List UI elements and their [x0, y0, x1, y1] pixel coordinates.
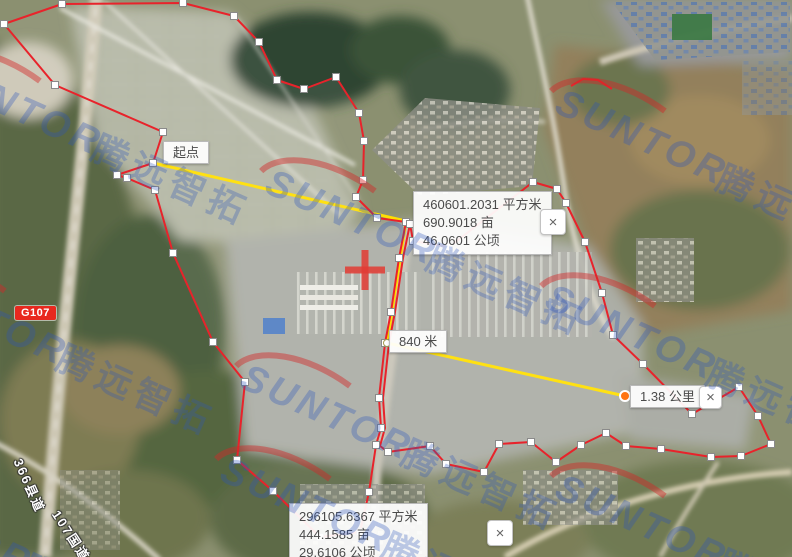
vertex-handle[interactable]	[385, 449, 392, 456]
close-distance-button[interactable]: ×	[699, 386, 722, 409]
area-tooltip-left: 460601.2031 平方米 690.9018 亩 46.0601 公顷	[413, 191, 552, 255]
area-right-mu: 444.1585 亩	[299, 526, 418, 544]
measurement-overlay	[0, 0, 792, 557]
vertex-handle[interactable]	[376, 395, 383, 402]
vertex-handle[interactable]	[582, 239, 589, 246]
vertex-handle[interactable]	[256, 39, 263, 46]
vertex-handle[interactable]	[231, 13, 238, 20]
vertex-handle[interactable]	[170, 250, 177, 257]
area-left-mu: 690.9018 亩	[423, 214, 542, 232]
vertex-handle[interactable]	[333, 74, 340, 81]
area-tooltip-right: 296105.6367 平方米 444.1585 亩 29.6106 公顷	[289, 503, 428, 557]
vertex-handle[interactable]	[640, 361, 647, 368]
vertex-handle[interactable]	[180, 0, 187, 7]
vertex-handle[interactable]	[563, 200, 570, 207]
vertex-handle[interactable]	[623, 443, 630, 450]
vertex-handle[interactable]	[360, 177, 367, 184]
vertex-handle[interactable]	[388, 309, 395, 316]
vertex-handle[interactable]	[603, 430, 610, 437]
vertex-handle[interactable]	[270, 488, 277, 495]
g107-road-badge: G107	[15, 306, 56, 320]
vertex-handle[interactable]	[496, 441, 503, 448]
vertex-handle[interactable]	[59, 1, 66, 8]
vertex-handle[interactable]	[356, 110, 363, 117]
vertex-handle[interactable]	[553, 459, 560, 466]
area-left-ha: 46.0601 公顷	[423, 232, 542, 250]
close-area-left-button[interactable]: ×	[540, 209, 566, 235]
vertex-handle[interactable]	[242, 379, 249, 386]
vertex-handle[interactable]	[599, 290, 606, 297]
vertex-handle[interactable]	[152, 187, 159, 194]
distance-segment-label: 840 米	[389, 330, 447, 353]
vertex-handle[interactable]	[114, 172, 121, 179]
vertex-handle[interactable]	[274, 77, 281, 84]
vertex-handle[interactable]	[396, 255, 403, 262]
road-accent	[571, 79, 612, 89]
vertex-handle[interactable]	[361, 138, 368, 145]
measure-endpoint[interactable]	[620, 391, 630, 401]
vertex-handle[interactable]	[768, 441, 775, 448]
vertex-handle[interactable]	[738, 453, 745, 460]
vertex-handle[interactable]	[378, 425, 385, 432]
vertex-handle[interactable]	[554, 186, 561, 193]
vertex-handle[interactable]	[353, 194, 360, 201]
map-canvas[interactable]: 起点 460601.2031 平方米 690.9018 亩 46.0601 公顷…	[0, 0, 792, 557]
area-right-sqm: 296105.6367 平方米	[299, 508, 418, 526]
vertex-handle[interactable]	[374, 215, 381, 222]
vertex-handle[interactable]	[52, 82, 59, 89]
vertex-handle[interactable]	[658, 446, 665, 453]
vertex-handle[interactable]	[481, 469, 488, 476]
vertex-handle[interactable]	[530, 179, 537, 186]
vertex-handle[interactable]	[708, 454, 715, 461]
vertex-handle[interactable]	[150, 160, 157, 167]
vertex-handle[interactable]	[427, 443, 434, 450]
vertex-handle[interactable]	[528, 439, 535, 446]
vertex-handle[interactable]	[160, 129, 167, 136]
vertex-handle[interactable]	[443, 461, 450, 468]
vertex-handle[interactable]	[210, 339, 217, 346]
start-point-label: 起点	[163, 141, 209, 164]
vertex-handle[interactable]	[755, 413, 762, 420]
area-left-sqm: 460601.2031 平方米	[423, 196, 542, 214]
vertex-handle[interactable]	[1, 21, 8, 28]
vertex-handle[interactable]	[366, 489, 373, 496]
vertex-handle[interactable]	[736, 384, 743, 391]
close-area-right-button[interactable]: ×	[487, 520, 513, 546]
vertex-handle[interactable]	[124, 175, 131, 182]
vertex-handle[interactable]	[610, 332, 617, 339]
vertex-handle[interactable]	[689, 411, 696, 418]
vertex-handle[interactable]	[301, 86, 308, 93]
vertex-handle[interactable]	[373, 442, 380, 449]
distance-total-label: 1.38 公里	[630, 385, 705, 408]
area-right-ha: 29.6106 公顷	[299, 544, 418, 557]
vertex-handle[interactable]	[234, 457, 241, 464]
vertex-handle[interactable]	[578, 442, 585, 449]
